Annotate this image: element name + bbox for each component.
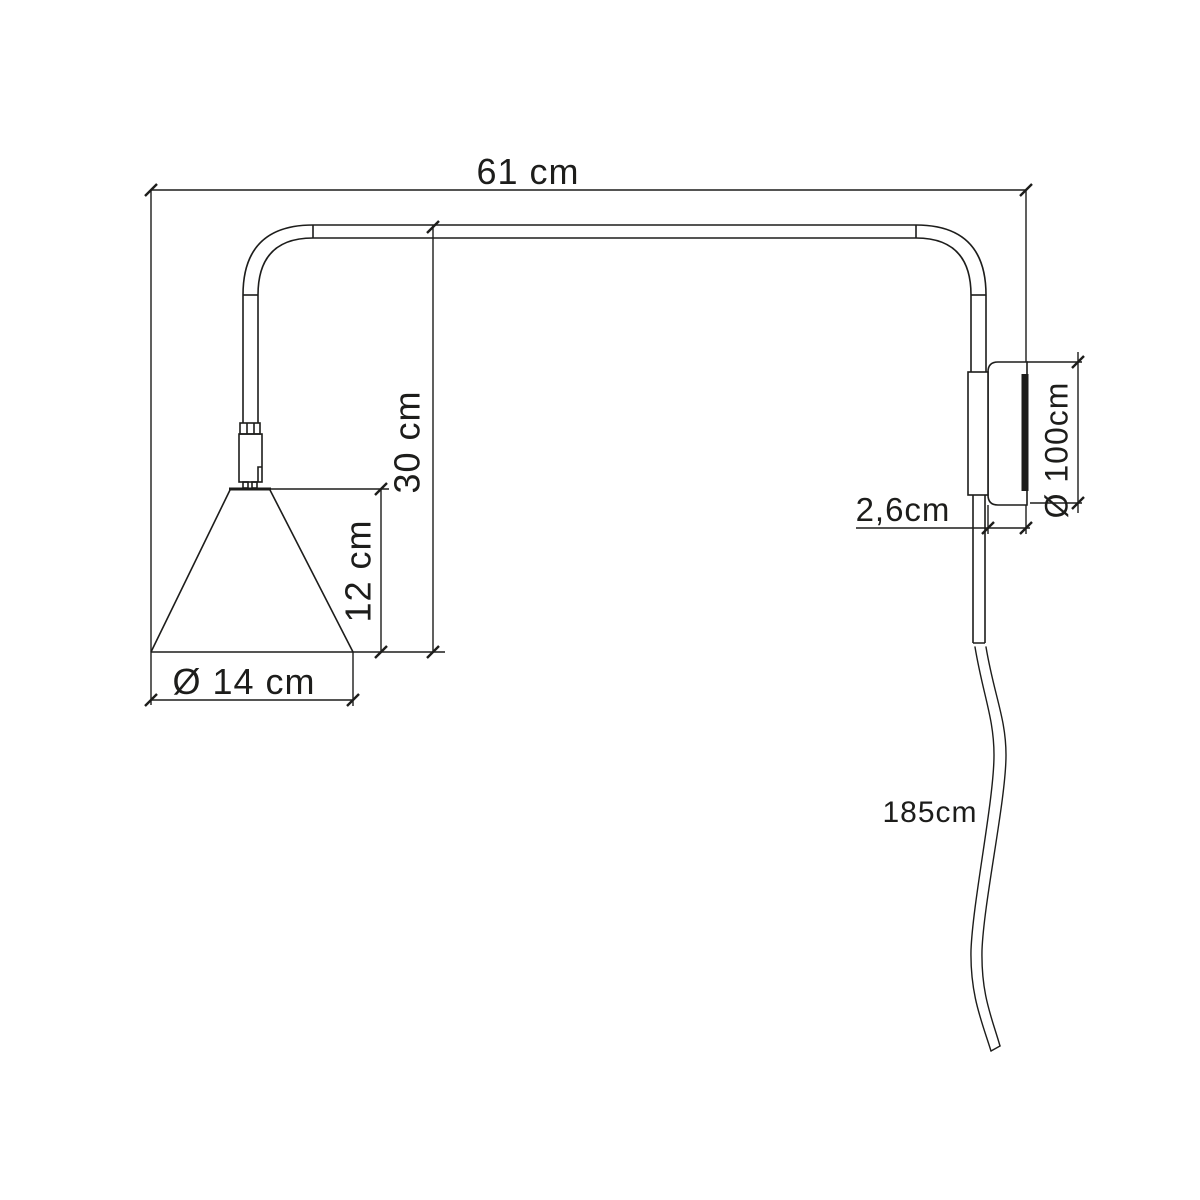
dimension-labels: 61 cm 30 cm 12 cm Ø 14 cm 2,6cm Ø 100cm … bbox=[172, 151, 1074, 829]
power-cable bbox=[971, 647, 1006, 1051]
socket-pin-right bbox=[252, 482, 257, 488]
plate-diameter-label: Ø 100cm bbox=[1038, 382, 1074, 519]
lamp-arm-inner-line bbox=[258, 238, 971, 423]
lamp-dimension-diagram: 61 cm 30 cm 12 cm Ø 14 cm 2,6cm Ø 100cm … bbox=[0, 0, 1200, 1200]
power-cable-right-line bbox=[982, 647, 1006, 1046]
lamp-arm-outer-line bbox=[243, 225, 986, 423]
wall-plate bbox=[988, 362, 1027, 505]
cable-length-label: 185cm bbox=[882, 796, 977, 829]
socket-nut bbox=[240, 423, 260, 434]
socket-pin-left bbox=[243, 482, 248, 488]
shade-diameter-label: Ø 14 cm bbox=[172, 661, 315, 702]
arm-height-label: 30 cm bbox=[387, 390, 428, 493]
diagram-canvas: 61 cm 30 cm 12 cm Ø 14 cm 2,6cm Ø 100cm … bbox=[0, 0, 1200, 1200]
lamp-body bbox=[151, 225, 1027, 1051]
dimension-lines bbox=[145, 184, 1084, 706]
dimension-arm-width bbox=[145, 184, 1032, 705]
wall-bracket bbox=[968, 372, 988, 495]
power-cable-tip bbox=[991, 1046, 1000, 1051]
plate-depth-label: 2,6cm bbox=[856, 491, 951, 528]
shade-height-label: 12 cm bbox=[338, 519, 379, 622]
cord-tube bbox=[973, 495, 985, 643]
arm-width-label: 61 cm bbox=[476, 151, 579, 192]
power-cable-left-line bbox=[971, 647, 994, 1051]
shade-cone-left-slant bbox=[151, 490, 230, 652]
